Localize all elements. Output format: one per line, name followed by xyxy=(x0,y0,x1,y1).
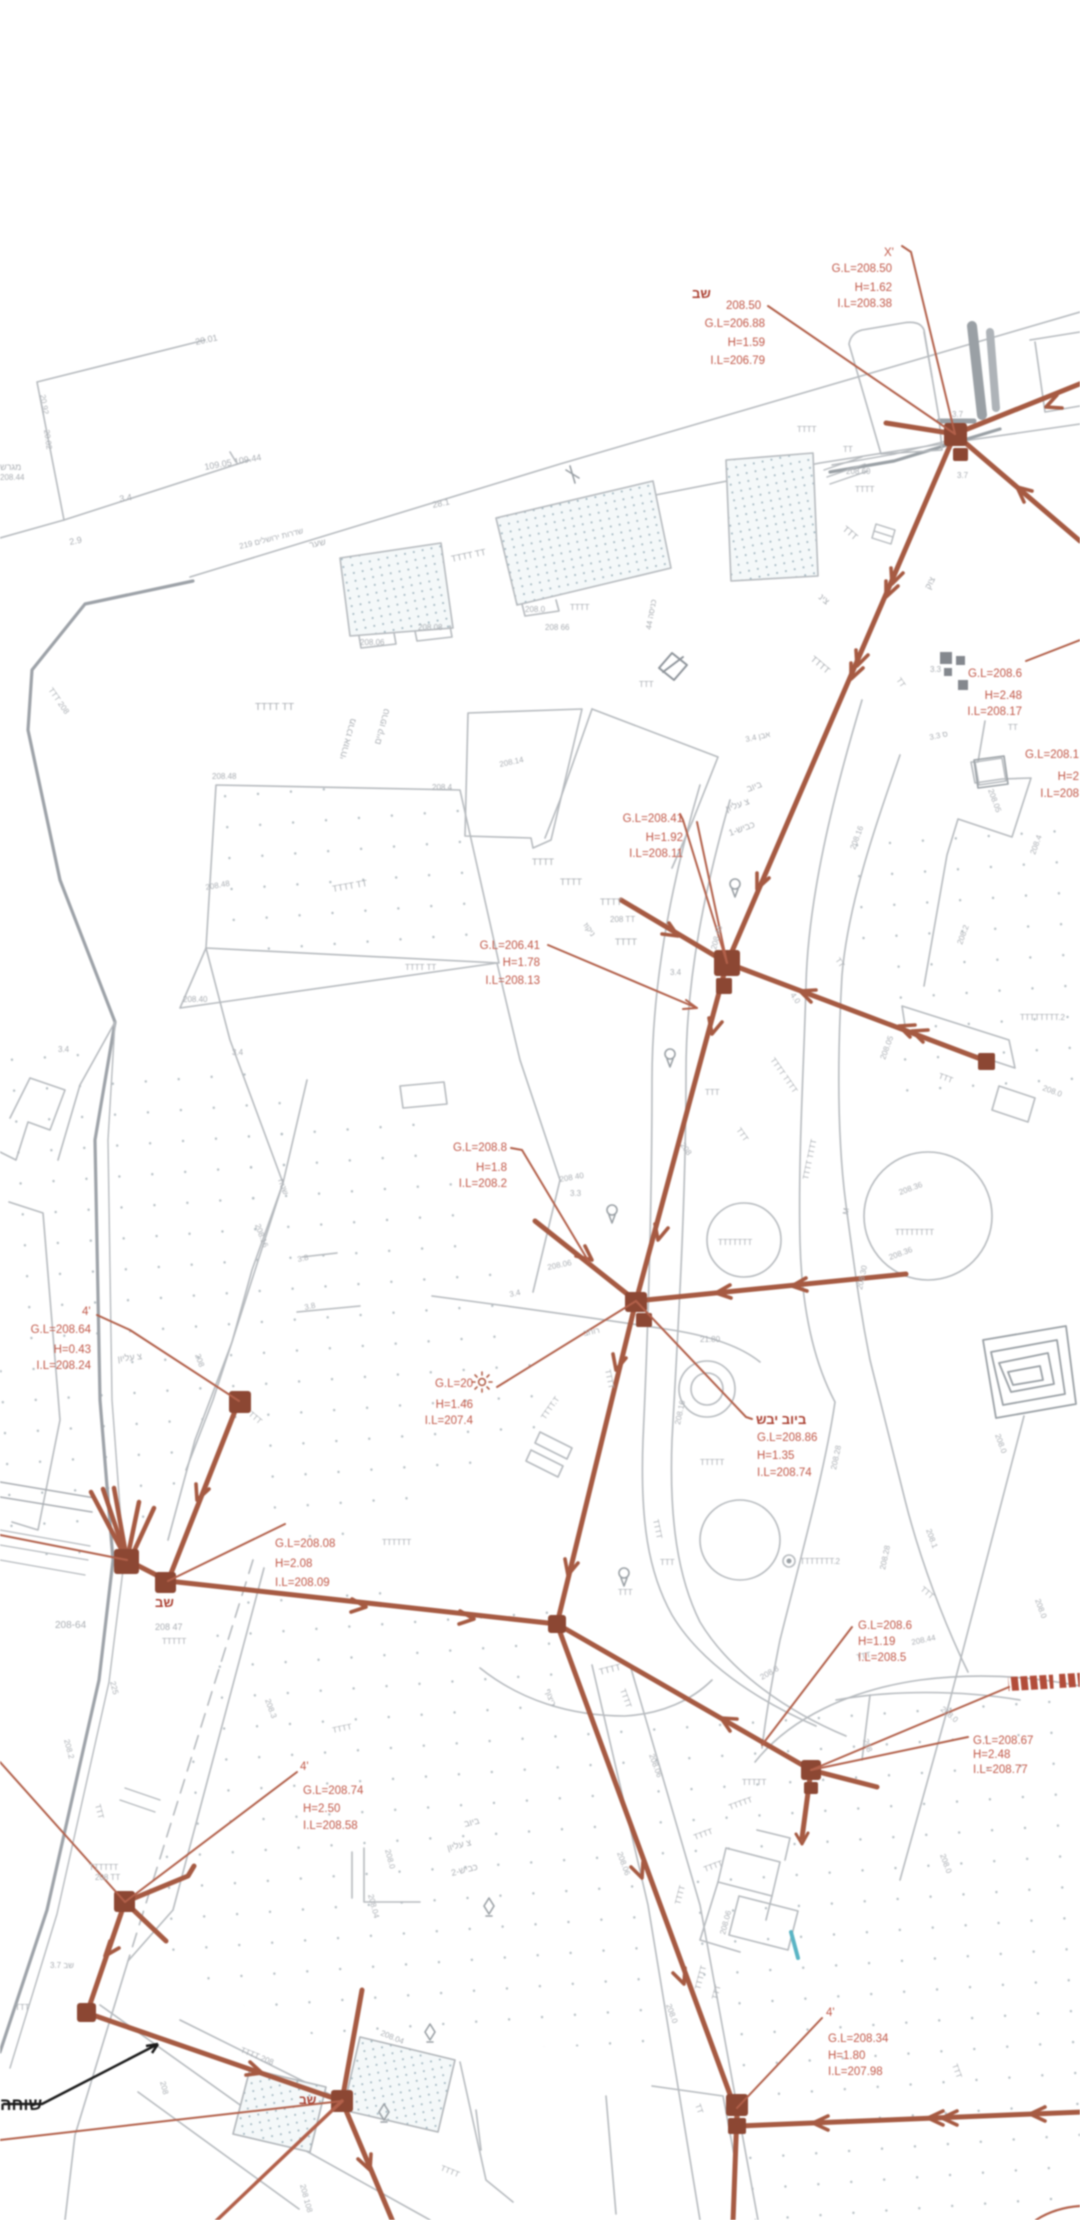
svg-text:ΤΤΤΤΤ: ΤΤΤΤΤ xyxy=(742,1778,767,1787)
svg-text:מגרש: מגרש xyxy=(0,462,21,472)
svg-text:H=1.46: H=1.46 xyxy=(436,1399,473,1411)
svg-text:208 60: 208 60 xyxy=(846,467,871,476)
svg-text:G.L=208.8: G.L=208.8 xyxy=(453,1142,507,1154)
svg-text:3.7 שב: 3.7 שב xyxy=(50,1961,74,1970)
svg-text:208.4: 208.4 xyxy=(432,783,453,792)
svg-text:4': 4' xyxy=(826,2007,835,2019)
svg-text:208.50: 208.50 xyxy=(726,300,761,312)
svg-text:4': 4' xyxy=(82,1306,91,1318)
svg-text:H=2.48: H=2.48 xyxy=(973,1749,1010,1761)
svg-text:ΤΤΤΤΤΤΤΤ.2: ΤΤΤΤΤΤΤΤ.2 xyxy=(1020,1013,1065,1022)
svg-text:208 ΤΤ: 208 ΤΤ xyxy=(95,1873,120,1882)
svg-text:ΤΤΤΤΤΤΤ: ΤΤΤΤΤΤΤ xyxy=(718,1238,752,1247)
svg-text:G.L=208.34: G.L=208.34 xyxy=(828,2033,889,2045)
svg-text:ΤΤΤ: ΤΤΤ xyxy=(15,2003,30,2012)
svg-text:G.L=208.6: G.L=208.6 xyxy=(858,1620,912,1632)
svg-text:208 47: 208 47 xyxy=(155,1622,183,1632)
svg-text:ΤΤΤΤΤ: ΤΤΤΤΤ xyxy=(162,1637,187,1646)
svg-text:G.L=208.74: G.L=208.74 xyxy=(303,1785,364,1797)
svg-text:I.L=208.24: I.L=208.24 xyxy=(36,1360,91,1372)
svg-text:I.L=208.09: I.L=208.09 xyxy=(275,1577,330,1589)
svg-text:208.48: 208.48 xyxy=(212,772,237,781)
svg-text:שב: שב xyxy=(155,1595,174,1610)
svg-text:I.L=207.98: I.L=207.98 xyxy=(828,2066,883,2078)
svg-text:I.L=208.13: I.L=208.13 xyxy=(485,975,540,987)
svg-text:I.L=208.74: I.L=208.74 xyxy=(757,1467,812,1479)
svg-text:H=2: H=2 xyxy=(1058,771,1079,783)
svg-text:ΤΤΤΤ: ΤΤΤΤ xyxy=(560,877,582,887)
svg-text:ΤΤΤΤΤΤ: ΤΤΤΤΤΤ xyxy=(382,1538,411,1547)
svg-text:ΤΤΤΤΤ: ΤΤΤΤΤ xyxy=(700,1458,725,1467)
svg-text:G.L=208.41: G.L=208.41 xyxy=(623,813,683,825)
svg-text:G.L=208.1: G.L=208.1 xyxy=(1025,749,1079,761)
svg-text:H=2.48: H=2.48 xyxy=(985,690,1022,702)
svg-text:3.4: 3.4 xyxy=(670,968,682,977)
svg-text:208.0: 208.0 xyxy=(525,605,546,614)
svg-text:208.40: 208.40 xyxy=(183,995,208,1004)
svg-text:ביוב יבש: ביוב יבש xyxy=(756,1412,806,1427)
svg-text:208.08: 208.08 xyxy=(418,623,443,632)
svg-text:21.80: 21.80 xyxy=(700,1335,721,1344)
svg-text:ΤΤΤΤ ΤΤ: ΤΤΤΤ ΤΤ xyxy=(405,963,436,972)
svg-text:3.7: 3.7 xyxy=(952,410,964,419)
svg-text:ΤΤΤ: ΤΤΤ xyxy=(660,1558,675,1567)
svg-text:G.L=20: G.L=20 xyxy=(435,1378,473,1390)
svg-text:ΤΤ: ΤΤ xyxy=(843,445,853,454)
svg-text:H=1.92: H=1.92 xyxy=(646,832,683,844)
svg-text:ΤΤΤΤ: ΤΤΤΤ xyxy=(600,897,622,907)
svg-text:ΤΤΤ: ΤΤΤ xyxy=(705,1088,720,1097)
svg-text:H=2.08: H=2.08 xyxy=(275,1558,312,1570)
svg-text:H=1.80: H=1.80 xyxy=(828,2050,865,2062)
svg-text:H=1.59: H=1.59 xyxy=(728,337,765,349)
svg-text:G.L=208.64: G.L=208.64 xyxy=(31,1324,92,1336)
svg-text:G.L=208.86: G.L=208.86 xyxy=(757,1432,817,1444)
svg-text:H=0.43: H=0.43 xyxy=(54,1344,91,1356)
svg-text:G.L=208.08: G.L=208.08 xyxy=(275,1538,335,1550)
svg-text:I.L=206.79: I.L=206.79 xyxy=(710,355,765,367)
svg-text:3.4: 3.4 xyxy=(58,1045,70,1054)
svg-text:208 ΤΤ: 208 ΤΤ xyxy=(610,915,635,924)
svg-text:ΤΤΤΤ: ΤΤΤΤ xyxy=(797,425,817,434)
svg-text:H=2.50: H=2.50 xyxy=(303,1803,340,1815)
svg-text:ΤΤΤ: ΤΤΤ xyxy=(639,680,654,689)
svg-text:H=1.19: H=1.19 xyxy=(858,1636,895,1648)
svg-text:ΤΤΤΤ: ΤΤΤΤ xyxy=(855,485,875,494)
svg-text:G.L=206.88: G.L=206.88 xyxy=(705,318,765,330)
svg-text:I.L=208.58: I.L=208.58 xyxy=(303,1820,358,1832)
svg-text:I.L=208.11: I.L=208.11 xyxy=(629,848,683,860)
svg-text:ΤΤΤΤ: ΤΤΤΤ xyxy=(570,603,590,612)
svg-text:208.44: 208.44 xyxy=(0,473,25,482)
svg-text:I.L=208.17: I.L=208.17 xyxy=(967,706,1022,718)
svg-text:ΤΤΤΤ ΤΤ: ΤΤΤΤ ΤΤ xyxy=(255,702,294,713)
svg-text:208.06: 208.06 xyxy=(360,638,385,647)
svg-text:G.L=208.67: G.L=208.67 xyxy=(973,1735,1033,1747)
svg-text:3.3: 3.3 xyxy=(930,665,942,674)
svg-text:G.L=208.50: G.L=208.50 xyxy=(832,263,892,275)
svg-text:3.3: 3.3 xyxy=(570,1189,582,1198)
svg-text:3.7: 3.7 xyxy=(957,471,969,480)
svg-text:I.L=208.77: I.L=208.77 xyxy=(973,1764,1028,1776)
svg-text:I.L=207.4: I.L=207.4 xyxy=(425,1415,474,1427)
svg-text:H=1.8: H=1.8 xyxy=(476,1162,507,1174)
svg-text:שב: שב xyxy=(692,286,711,301)
svg-text:G.L=208.6: G.L=208.6 xyxy=(968,668,1022,680)
svg-text:I.L=208.38: I.L=208.38 xyxy=(837,298,892,310)
svg-text:ΤΤΤΤΤΤΤ.2: ΤΤΤΤΤΤΤ.2 xyxy=(800,1557,841,1566)
svg-text:ΤΤΤ: ΤΤΤ xyxy=(618,1588,633,1597)
svg-text:H=1.35: H=1.35 xyxy=(757,1450,794,1462)
svg-text:ΤΤΤΤ: ΤΤΤΤ xyxy=(615,937,637,947)
svg-text:208-64: 208-64 xyxy=(55,1620,87,1631)
svg-text:שב: שב xyxy=(299,2093,317,2107)
svg-text:H=1.62: H=1.62 xyxy=(855,282,892,294)
svg-text:3.4: 3.4 xyxy=(119,492,133,504)
svg-text:I.L=208.2: I.L=208.2 xyxy=(459,1178,507,1190)
svg-text:208 66: 208 66 xyxy=(545,623,570,632)
svg-text:ΤΤΤΤΤΤΤΤ: ΤΤΤΤΤΤΤΤ xyxy=(895,1228,934,1237)
svg-text:X': X' xyxy=(884,247,894,259)
svg-text:4': 4' xyxy=(300,1761,309,1773)
svg-text:I.L=208: I.L=208 xyxy=(1040,788,1079,800)
svg-text:3.4: 3.4 xyxy=(232,1048,244,1057)
svg-text:H=1.78: H=1.78 xyxy=(503,957,540,969)
svg-text:G.L=206.41: G.L=206.41 xyxy=(480,940,540,952)
svg-text:ΤΤ: ΤΤ xyxy=(1008,723,1018,732)
svg-text:ΤΤΤΤ: ΤΤΤΤ xyxy=(532,857,554,867)
svg-text:ΤΤΤΤΤΤ: ΤΤΤΤΤΤ xyxy=(89,1863,118,1872)
